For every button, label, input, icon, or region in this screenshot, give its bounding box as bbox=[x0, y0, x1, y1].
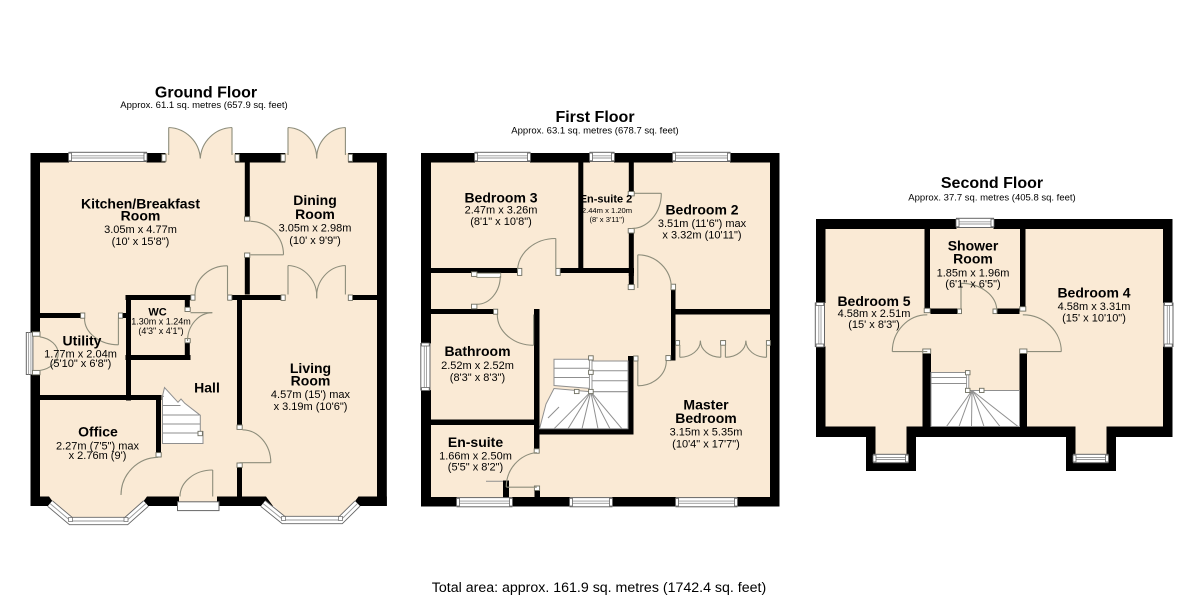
svg-text:Utility: Utility bbox=[63, 333, 102, 349]
svg-text:(15' x 8'3"): (15' x 8'3") bbox=[848, 319, 900, 331]
svg-text:1.30m x 1.24m: 1.30m x 1.24m bbox=[131, 317, 191, 327]
svg-text:x 2.76m (9'): x 2.76m (9') bbox=[69, 450, 127, 462]
svg-text:Ground Floor: Ground Floor bbox=[155, 85, 257, 102]
svg-text:4.58m x 3.31m: 4.58m x 3.31m bbox=[1058, 301, 1131, 313]
svg-text:Approx. 61.1 sq. metres (657.9: Approx. 61.1 sq. metres (657.9 sq. feet) bbox=[120, 100, 287, 111]
svg-text:2.47m x 3.26m: 2.47m x 3.26m bbox=[465, 205, 538, 217]
svg-text:Total area: approx. 161.9 sq.: Total area: approx. 161.9 sq. metres (17… bbox=[432, 580, 766, 596]
svg-text:Bedroom 4: Bedroom 4 bbox=[1057, 285, 1130, 301]
svg-text:2.52m x 2.52m: 2.52m x 2.52m bbox=[441, 360, 514, 372]
svg-text:(15' x 10'10"): (15' x 10'10") bbox=[1062, 313, 1126, 325]
svg-text:x 3.32m (10'11"): x 3.32m (10'11") bbox=[662, 230, 741, 242]
svg-text:(6'1" x 6'5"): (6'1" x 6'5") bbox=[945, 279, 1000, 291]
svg-text:Room: Room bbox=[291, 373, 331, 389]
svg-text:(4'3" x 4'1"): (4'3" x 4'1") bbox=[138, 326, 183, 336]
svg-text:(5'10" x 6'8"): (5'10" x 6'8") bbox=[50, 358, 112, 370]
svg-text:(10' x 15'8"): (10' x 15'8") bbox=[112, 236, 170, 248]
svg-text:Bedroom: Bedroom bbox=[675, 410, 736, 426]
svg-text:Bathroom: Bathroom bbox=[444, 343, 510, 359]
svg-text:(8' x 3'11"): (8' x 3'11") bbox=[590, 215, 625, 224]
svg-text:Bedroom 5: Bedroom 5 bbox=[837, 293, 910, 309]
svg-text:(8'3" x 8'3"): (8'3" x 8'3") bbox=[450, 372, 505, 384]
svg-text:(10' x 9'9"): (10' x 9'9") bbox=[289, 235, 341, 247]
svg-text:4.57m (15') max: 4.57m (15') max bbox=[271, 389, 351, 401]
svg-text:3.51m (11'6") max: 3.51m (11'6") max bbox=[658, 218, 747, 230]
svg-text:2.44m x 1.20m: 2.44m x 1.20m bbox=[582, 206, 632, 215]
svg-text:Bedroom 3: Bedroom 3 bbox=[464, 190, 537, 206]
svg-text:x 3.19m (10'6"): x 3.19m (10'6") bbox=[274, 401, 348, 413]
svg-text:Office: Office bbox=[78, 424, 118, 440]
svg-text:(8'1" x 10'8"): (8'1" x 10'8") bbox=[470, 216, 532, 228]
svg-text:(10'4" x 17'7"): (10'4" x 17'7") bbox=[672, 439, 740, 451]
svg-text:Room: Room bbox=[953, 251, 993, 267]
svg-text:Room: Room bbox=[295, 206, 335, 222]
svg-text:(5'5" x 8'2"): (5'5" x 8'2") bbox=[448, 462, 503, 474]
svg-text:3.05m x 4.77m: 3.05m x 4.77m bbox=[104, 224, 177, 236]
svg-text:Bedroom 2: Bedroom 2 bbox=[665, 202, 738, 218]
svg-text:First Floor: First Floor bbox=[555, 109, 634, 126]
svg-text:3.05m x 2.98m: 3.05m x 2.98m bbox=[279, 223, 352, 235]
svg-text:Hall: Hall bbox=[194, 380, 220, 396]
svg-text:En-suite: En-suite bbox=[448, 434, 503, 450]
svg-text:Approx. 63.1 sq. metres (678.7: Approx. 63.1 sq. metres (678.7 sq. feet) bbox=[511, 126, 678, 137]
svg-text:En-suite 2: En-suite 2 bbox=[580, 194, 633, 206]
svg-text:3.15m x 5.35m: 3.15m x 5.35m bbox=[670, 427, 743, 439]
svg-text:Approx. 37.7 sq. metres (405.8: Approx. 37.7 sq. metres (405.8 sq. feet) bbox=[908, 193, 1075, 204]
svg-text:Second Floor: Second Floor bbox=[941, 175, 1043, 192]
svg-text:Room: Room bbox=[121, 208, 161, 224]
